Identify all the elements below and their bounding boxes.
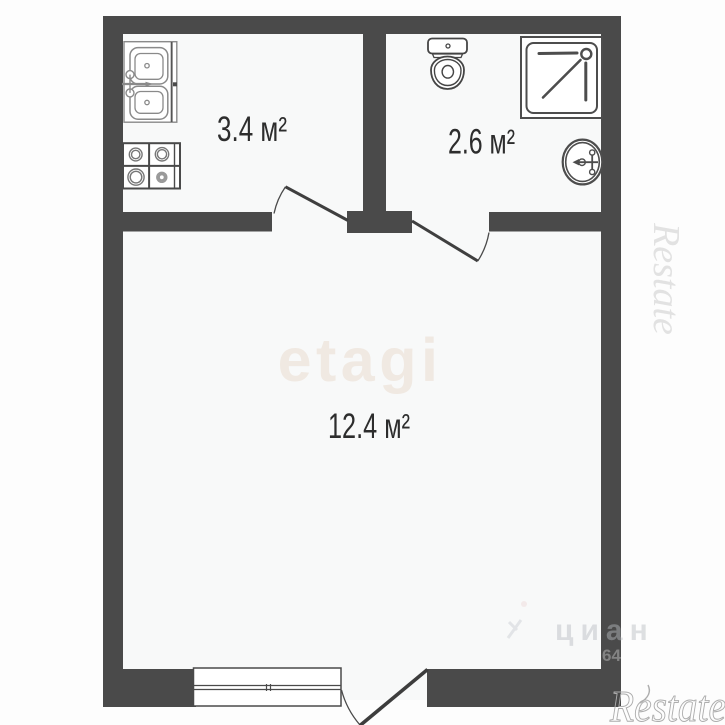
svg-text:Restate: Restate [609, 682, 725, 725]
svg-text:циан: циан [555, 614, 655, 647]
svg-text:64: 64 [602, 646, 621, 665]
svg-text:12.4 м²: 12.4 м² [328, 407, 410, 446]
svg-text:3.4 м²: 3.4 м² [217, 110, 287, 149]
svg-text:Restate: Restate [645, 222, 687, 335]
svg-text:2.6 м²: 2.6 м² [448, 123, 515, 162]
svg-text:etagi: etagi [278, 326, 443, 394]
